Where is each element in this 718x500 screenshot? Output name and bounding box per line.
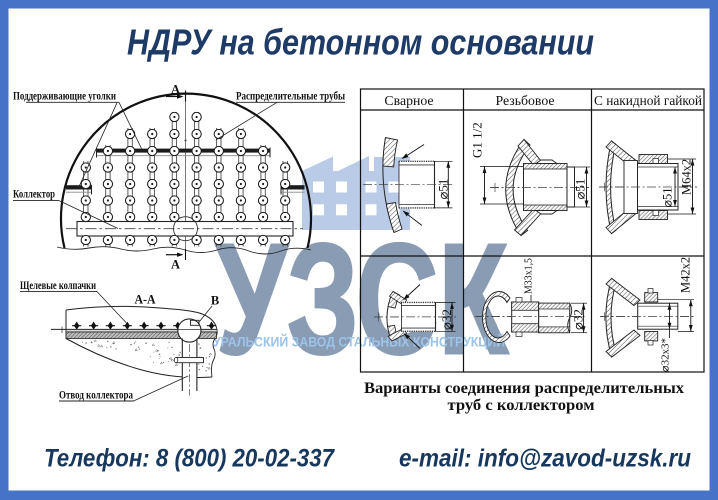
- svg-text:⌀51: ⌀51: [436, 179, 451, 200]
- svg-text:НДРУ на бетонном основании: НДРУ на бетонном основании: [127, 22, 594, 63]
- svg-text:⌀51: ⌀51: [661, 187, 675, 207]
- svg-text:М33х1,5: М33х1,5: [523, 258, 535, 294]
- svg-text:С накидной гайкой: С накидной гайкой: [594, 93, 703, 108]
- svg-text:УРАЛЬСКИЙ ЗАВОД СТАЛЬНЫХ КОНСТ: УРАЛЬСКИЙ ЗАВОД СТАЛЬНЫХ КОНСТРУКЦИЙ: [213, 333, 505, 350]
- svg-text:А: А: [171, 83, 180, 97]
- svg-text:⌀51: ⌀51: [573, 179, 588, 200]
- svg-text:G1 1/2: G1 1/2: [470, 122, 485, 158]
- svg-text:e-mail: info@zavod-uzsk.ru: e-mail: info@zavod-uzsk.ru: [399, 445, 691, 473]
- svg-text:Сварное: Сварное: [384, 93, 433, 108]
- svg-text:Резьбовое: Резьбовое: [495, 93, 554, 108]
- svg-text:А-А: А-А: [135, 292, 157, 307]
- svg-text:М42х2: М42х2: [679, 257, 693, 293]
- svg-text:Варианты соединения распредели: Варианты соединения распределительных: [364, 379, 684, 397]
- svg-text:Поддерживающие уголки: Поддерживающие уголки: [13, 91, 116, 103]
- svg-text:⌀32: ⌀32: [439, 309, 454, 330]
- svg-text:⌀32х3*: ⌀32х3*: [660, 338, 672, 372]
- svg-text:М64х2: М64х2: [680, 159, 694, 195]
- svg-text:Распределительные трубы: Распределительные трубы: [236, 91, 345, 103]
- svg-text:Телефон: 8 (800) 20-02-337: Телефон: 8 (800) 20-02-337: [44, 445, 335, 473]
- svg-text:Коллектор: Коллектор: [13, 189, 55, 201]
- svg-text:труб с коллектором: труб с коллектором: [448, 396, 595, 414]
- svg-text:Отвод коллектора: Отвод коллектора: [59, 390, 133, 402]
- svg-text:В: В: [211, 294, 219, 308]
- svg-text:⌀32: ⌀32: [571, 309, 586, 330]
- svg-text:А: А: [171, 258, 180, 272]
- svg-text:Щелевые колпачки: Щелевые колпачки: [20, 280, 96, 292]
